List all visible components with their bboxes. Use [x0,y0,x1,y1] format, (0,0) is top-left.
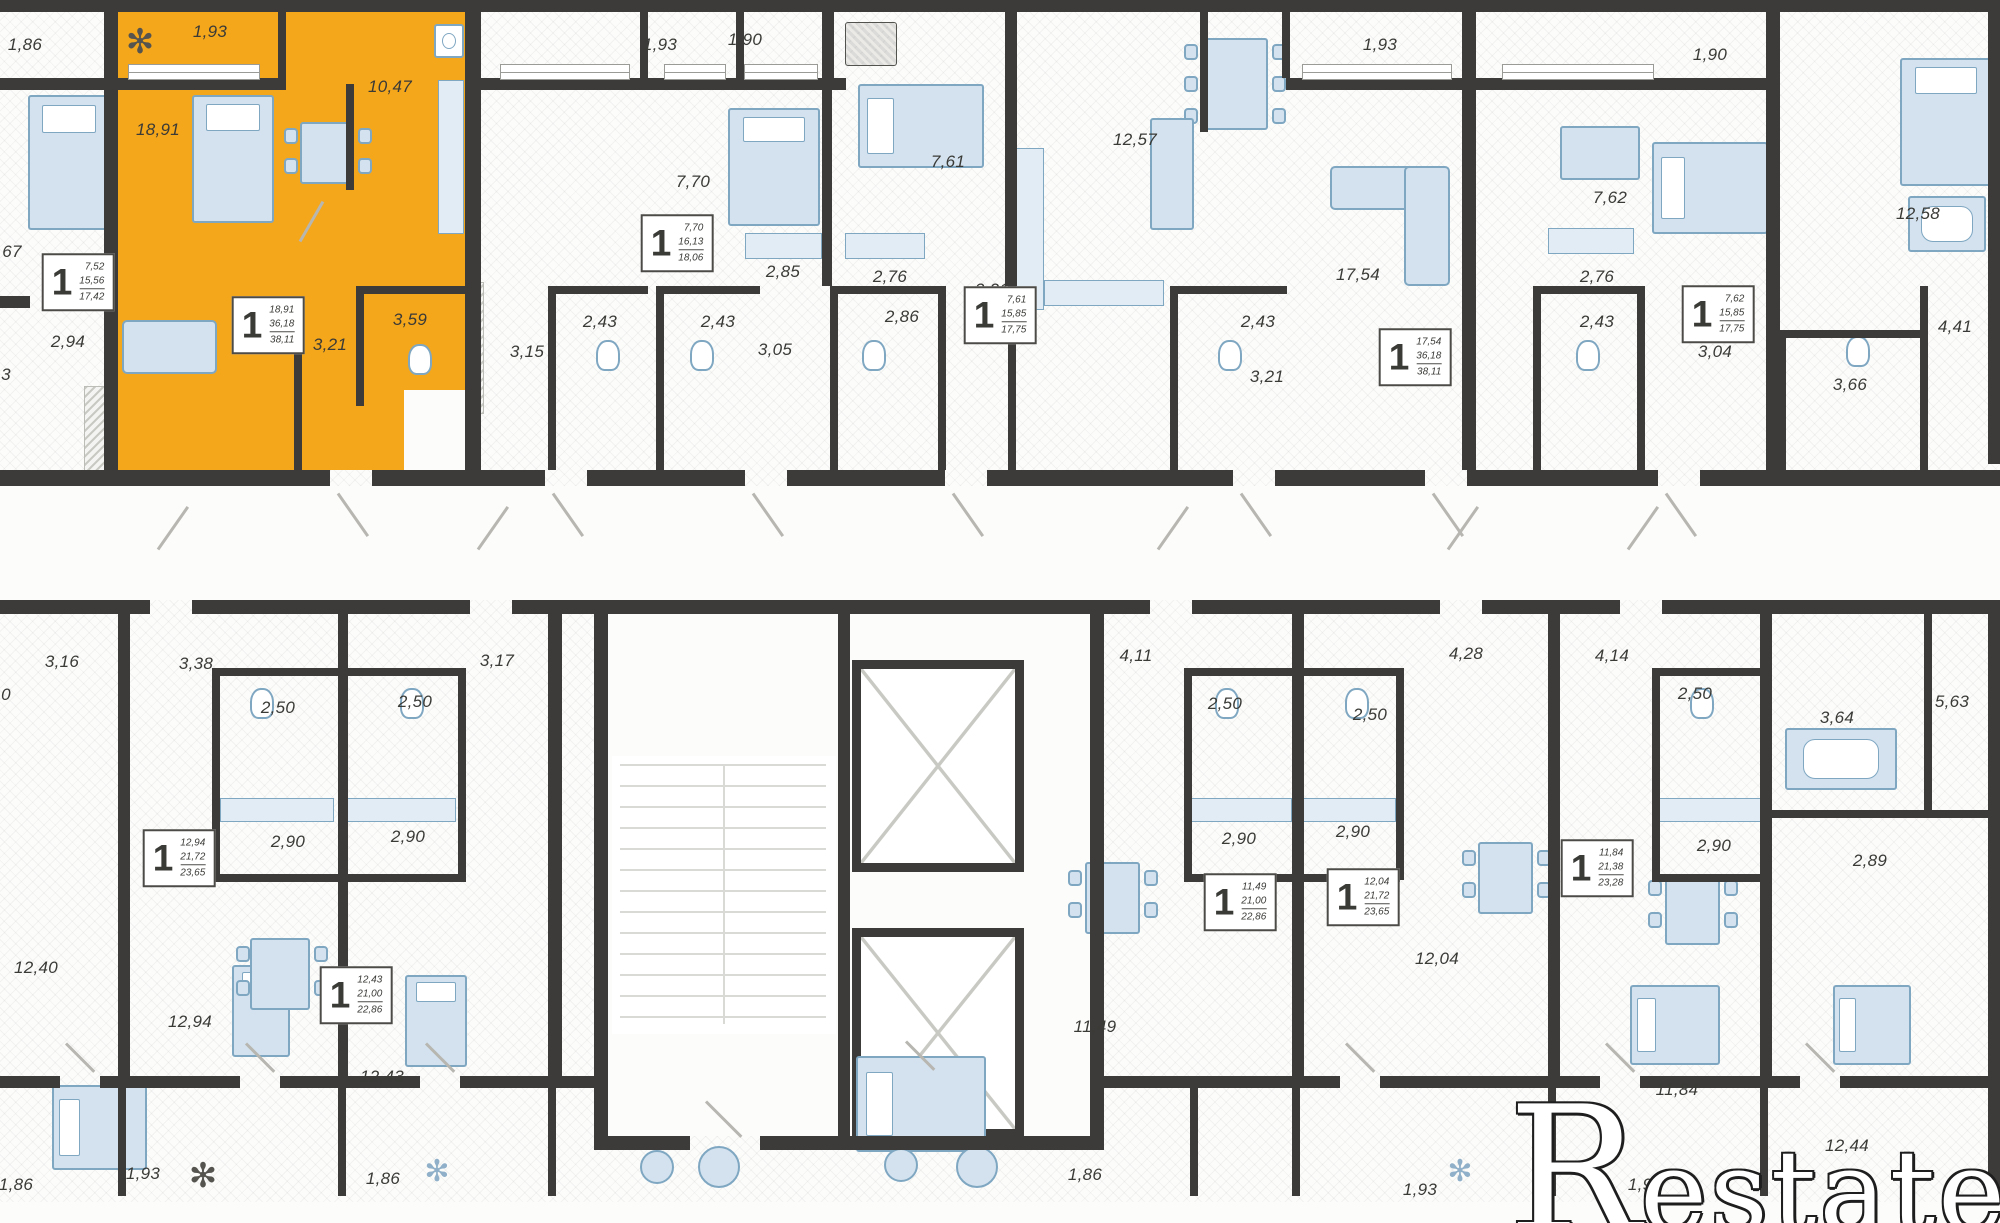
chair-icon [1724,912,1738,928]
furniture-sofa [1404,166,1450,286]
wall [118,600,130,1076]
wall [1920,286,1928,470]
window-glazing [744,64,818,80]
room-area-label: 3,16 [45,652,79,672]
wall [465,0,481,470]
wall [1652,874,1772,882]
wall [838,614,850,1150]
unit-total-area: 18,06 [678,249,703,265]
wall [1467,470,1658,486]
unit-living-area: 11,84 [1599,846,1623,860]
unit-info-box[interactable]: 17,6115,8517,75 [964,286,1037,344]
unit-rooms-count: 1 [974,299,995,330]
wall [548,286,556,470]
unit-area-no-balcony: 15,56 [79,274,104,288]
elevator-shaft-1 [852,660,1024,872]
window-hatch-pier [84,386,106,472]
room-area-label: 3,64 [1820,708,1854,728]
room-area-label: 3,17 [480,651,514,671]
unit-area-values: 7,5215,5617,42 [79,260,104,304]
wall [1778,330,1927,338]
unit-total-area: 38,11 [1417,363,1441,379]
room-area-label: 1,93 [1363,35,1397,55]
wall [548,600,562,1076]
wall [356,286,364,406]
wall [830,286,946,294]
room-area-label: 1,90 [1693,45,1727,65]
floor-plan-canvas: 1,861,9310,4718,91672,9433,213,591,937,7… [0,0,2000,1223]
wall [1005,12,1017,286]
wall [1190,1086,1198,1196]
unit-living-area: 7,70 [684,221,703,235]
elevator-x-mark [861,669,1015,863]
room-area-label: 2,90 [391,827,425,847]
wall [587,470,745,486]
wall [0,470,330,486]
furniture-block [1560,126,1640,180]
unit-rooms-count: 1 [1692,298,1713,329]
wall [1924,614,1932,810]
bed-icon [52,1085,147,1170]
wall [346,84,354,190]
room-area-label: 12,58 [1896,204,1940,224]
room-area-label: 2,50 [261,698,295,718]
bed-icon [28,95,110,230]
wall [1090,600,1104,1150]
window-glazing [664,64,726,80]
washing-machine-icon [434,24,464,58]
balcony-table-icon [884,1148,918,1182]
chair-icon [1462,850,1476,866]
snowflake-icon: ✻ [424,1157,449,1187]
unit-info-box[interactable]: 111,8421,3823,28 [1561,839,1634,897]
room-area-label: 7,70 [676,172,710,192]
unit-living-area: 12,43 [357,973,382,987]
bed-pillow [1637,998,1656,1051]
chair-icon [358,158,372,174]
wall [278,12,286,90]
wall [1170,286,1287,294]
chair-icon [236,946,250,962]
unit-area-no-balcony: 36,18 [1416,349,1441,363]
wall [1662,600,2000,614]
unit-rooms-count: 1 [651,227,672,258]
unit-info-box-highlighted[interactable]: 118,9136,1838,11 [232,296,305,354]
room-area-label: 0 [1,685,11,705]
room-area-label: 2,50 [1678,684,1712,704]
chair-icon [1724,880,1738,896]
room-area-label: 4,11 [1119,646,1152,666]
wall [212,874,466,882]
wall [0,0,2000,12]
unit-area-values: 7,7016,1318,06 [678,221,703,265]
unit-info-box[interactable]: 17,7016,1318,06 [641,214,714,272]
chair-icon [1648,880,1662,896]
wall [1282,12,1290,78]
chair-icon [314,946,328,962]
unit-total-area: 17,75 [1719,320,1744,336]
bed-pillow [416,982,457,1002]
wall [118,1086,126,1196]
balcony-table-icon [956,1146,998,1188]
furniture-counter [346,798,456,822]
toilet-icon [596,340,620,371]
wall [594,600,608,1150]
toilet-icon [1218,340,1242,371]
toilet-icon [1846,336,1870,367]
wall [1988,12,2000,464]
room-area-label: 2,50 [398,692,432,712]
room-area-label: 2,90 [1336,822,1370,842]
wall [458,668,466,880]
bed-icon [1833,985,1911,1065]
toilet-icon [862,340,886,371]
room-area-label: 1,90 [728,30,762,50]
wall [1462,0,1476,470]
watermark-letter-r: R [1508,1106,1640,1223]
snowflake-icon: ✻ [1447,1157,1472,1187]
chair-icon [284,128,298,144]
room-area-label: 3,21 [1250,367,1284,387]
chair-icon [358,128,372,144]
wall [1275,470,1425,486]
dining-table [1202,38,1268,130]
wall [212,668,466,676]
room-area-label: 1,86 [1068,1165,1102,1185]
room-area-label: 7,61 [931,152,965,172]
room-area-label: 2,94 [51,332,85,352]
chair-icon [284,158,298,174]
unit-area-values: 11,4921,0022,86 [1241,880,1266,924]
bed-pillow [206,104,261,131]
unit-rooms-count: 1 [52,266,73,297]
room-area-label: 3,04 [1698,342,1732,362]
toilet-icon [1576,340,1600,371]
wall [1840,1076,1988,1088]
wall [656,286,664,470]
room-area-label: 1,93 [643,35,677,55]
unit-total-area: 17,42 [79,288,104,304]
room-area-label: 12,94 [168,1012,212,1032]
room-area-label: 2,43 [701,312,735,332]
window-glazing [128,64,260,80]
room-area-label: 3,59 [393,310,427,330]
stair-divider [723,764,725,1024]
bathtub-inner [1803,739,1879,780]
wall [460,1076,594,1088]
room-area-label: 2,86 [885,307,919,327]
unit-area-no-balcony: 21,72 [180,850,205,864]
room-area-label: 7,62 [1593,188,1627,208]
wall [104,0,118,470]
unit-area-no-balcony: 21,00 [1241,894,1266,908]
chair-icon [1462,882,1476,898]
room-area-label: 1,86 [0,1175,33,1195]
wall [938,286,946,470]
furniture-counter [1044,280,1164,306]
room-area-label: 17,54 [1336,265,1380,285]
toilet-icon [690,340,714,371]
furniture-counter [1188,798,1292,822]
unit-area-values: 7,6115,8517,75 [1001,293,1026,337]
wall [1192,600,1440,614]
room-area-label: 1,86 [366,1169,400,1189]
wall [192,600,470,614]
room-area-label: 11,84 [1656,1080,1699,1100]
bed-icon [728,108,820,226]
unit-info-box[interactable]: 17,6215,8517,75 [1682,285,1755,343]
room-area-label: 3,21 [313,335,347,355]
room-area-label: 4,28 [1449,644,1483,664]
wall [1184,668,1400,676]
wall [356,286,466,294]
unit-area-no-balcony: 21,72 [1364,889,1389,903]
unit-area-values: 17,5436,1838,11 [1416,335,1441,379]
unit-rooms-count: 1 [1214,886,1235,917]
chair-icon [1648,912,1662,928]
unit-rooms-count: 1 [1337,881,1358,912]
unit-total-area: 23,65 [180,864,205,880]
unit-rooms-count: 1 [242,309,263,340]
room-area-label: 18,91 [136,120,180,140]
unit-area-no-balcony: 21,00 [357,987,382,1001]
unit-total-area: 23,28 [1598,874,1623,890]
dining-table [1478,842,1533,914]
wall [548,286,648,294]
ac-unit-icon [845,22,897,66]
room-area-label: 67 [2,242,22,262]
unit-rooms-count: 1 [1389,341,1410,372]
room-area-label: 1,93 [126,1164,160,1184]
window-glazing [1302,64,1452,80]
wall [1533,286,1541,470]
room-area-label: 1,93 [193,22,227,42]
wall [0,1076,60,1088]
room-area-label: 3,05 [758,340,792,360]
furniture-counter [1658,798,1768,822]
wall [830,286,838,470]
room-area-label: 2,89 [1853,851,1887,871]
wall [787,470,945,486]
unit-area-values: 12,4321,0022,86 [357,973,382,1017]
chair-icon [1068,902,1082,918]
corridor-band [0,486,2000,600]
room-area-label: 5,63 [1935,692,1969,712]
bed-pillow [1839,998,1856,1051]
dining-table [250,938,310,1010]
furniture-counter [1548,228,1634,254]
staircase [612,756,836,1034]
bed-pillow [59,1099,79,1156]
unit-area-no-balcony: 15,85 [1001,307,1026,321]
room-area-label: 12,57 [1113,130,1157,150]
toilet-icon [408,344,432,375]
unit-total-area: 22,86 [1241,908,1266,924]
wall [1533,286,1644,294]
unit-area-values: 7,6215,8517,75 [1719,292,1744,336]
wall [294,340,302,470]
wall [760,1136,1104,1150]
unit-living-area: 7,52 [85,260,104,274]
unit-living-area: 7,61 [1007,293,1026,307]
unit-area-values: 18,9136,1838,11 [269,303,294,347]
wall [0,296,30,308]
wall [1184,668,1192,880]
room-area-label: 4,41 [1938,317,1972,337]
bathtub-icon [1785,728,1897,790]
unit-info-box[interactable]: 117,5436,1838,11 [1379,328,1452,386]
chair-icon [1272,108,1286,124]
room-area-label: 2,85 [766,262,800,282]
room-area-label: 2,76 [873,267,907,287]
bed-pillow [866,1072,893,1136]
room-area-label: 12,04 [1415,949,1459,969]
room-area-label: 12,40 [14,958,58,978]
unit-living-area: 7,62 [1725,292,1744,306]
washer-drum [442,33,457,50]
unit-area-values: 11,8421,3823,28 [1598,846,1623,890]
unit-total-area: 22,86 [357,1001,382,1017]
window-glazing [500,64,630,80]
unit-info-box[interactable]: 17,5215,5617,42 [42,253,115,311]
wall [338,1086,346,1196]
bed-icon [1900,58,1992,186]
unit-living-area: 12,04 [1364,875,1389,889]
bed-pillow [867,98,893,154]
bed-pillow [42,105,97,133]
wall [594,1136,690,1150]
bed-pillow [1915,67,1977,94]
wall [548,1086,556,1196]
unit-area-no-balcony: 16,13 [678,235,703,249]
wall [1170,286,1178,470]
unit-living-area: 17,54 [1416,335,1441,349]
wall [1778,330,1786,470]
room-area-label: 4,14 [1595,646,1629,666]
snowflake-icon: ✻ [189,1159,218,1193]
chair-icon [1184,44,1198,60]
chair-icon [1184,76,1198,92]
unit-rooms-count: 1 [330,979,351,1010]
chair-icon [1144,902,1158,918]
wall [1652,668,1660,880]
chair-icon [236,980,250,996]
wall [1652,668,1772,676]
unit-living-area: 12,94 [180,836,205,850]
watermark-estate-text: estate [1640,1150,2000,1223]
wall [1292,1086,1300,1196]
unit-rooms-count: 1 [1571,852,1592,883]
room-area-label: 2,43 [1580,312,1614,332]
room-area-label: 3,38 [179,654,213,674]
unit-info-box[interactable]: 112,0421,7223,65 [1327,868,1400,926]
wall [656,286,760,294]
unit-rooms-count: 1 [153,842,174,873]
dining-table [1665,875,1720,945]
room-area-label: 2,90 [271,832,305,852]
wall [987,470,1233,486]
unit-living-area: 11,49 [1242,880,1266,894]
wall [1772,810,1988,818]
chair-icon [1068,870,1082,886]
furniture-counter [438,80,464,234]
room-area-label: 1,86 [8,35,42,55]
bed-icon [1652,142,1768,234]
bed-icon [1630,985,1720,1065]
bed-icon [192,95,274,223]
unit-area-values: 12,9421,7223,65 [180,836,205,880]
furniture-counter [1296,798,1396,822]
bed-pillow [1661,157,1685,219]
wall [1637,286,1645,470]
wall [372,470,545,486]
room-area-label: 2,90 [1697,836,1731,856]
room-area-label: 3,15 [510,342,544,362]
room-area-label: 2,43 [583,312,617,332]
unit-info-box[interactable]: 112,9421,7223,65 [143,829,216,887]
room-area-label: 3,66 [1833,375,1867,395]
wall [1104,1076,1340,1088]
unit-area-no-balcony: 15,85 [1719,306,1744,320]
wall [1548,600,1560,1076]
furniture-counter [220,798,334,822]
unit-area-values: 12,0421,7223,65 [1364,875,1389,919]
snowflake-icon: ✻ [126,25,155,59]
unit-total-area: 38,11 [270,331,294,347]
room-area-label: 2,43 [1241,312,1275,332]
room-area-label: 2,90 [1222,829,1256,849]
balcony-table-icon [640,1150,674,1184]
furniture-counter [745,233,822,259]
balcony-table-icon [698,1146,740,1188]
room-area-label: 11,49 [1074,1017,1117,1037]
room-area-label: 3 [1,365,11,385]
wall [1700,470,2000,486]
bed-pillow [743,117,805,142]
room-area-label: 2,76 [1580,267,1614,287]
wall [1396,668,1404,880]
unit-living-area: 18,91 [269,303,294,317]
unit-area-no-balcony: 21,38 [1598,860,1623,874]
room-area-label: 2,50 [1353,705,1387,725]
window-glazing [1502,64,1654,80]
room-area-label: 10,47 [368,77,412,97]
furniture-counter [845,233,925,259]
wall [1104,600,1150,614]
furniture-sofa [122,320,217,374]
room-area-label: 12,43 [360,1067,404,1087]
unit-area-no-balcony: 36,18 [269,317,294,331]
unit-total-area: 23,65 [1364,903,1389,919]
room-area-label: 1,93 [1403,1180,1437,1200]
chair-icon [1272,76,1286,92]
chair-icon [1144,870,1158,886]
unit-info-box[interactable]: 111,4921,0022,86 [1204,873,1277,931]
room-area-label: 2,50 [1208,694,1242,714]
unit-info-box[interactable]: 112,4321,0022,86 [320,966,393,1024]
watermark-restate: Restate [1508,1106,2000,1223]
unit-total-area: 17,75 [1001,321,1026,337]
wall [1200,12,1208,132]
wall [826,12,834,78]
